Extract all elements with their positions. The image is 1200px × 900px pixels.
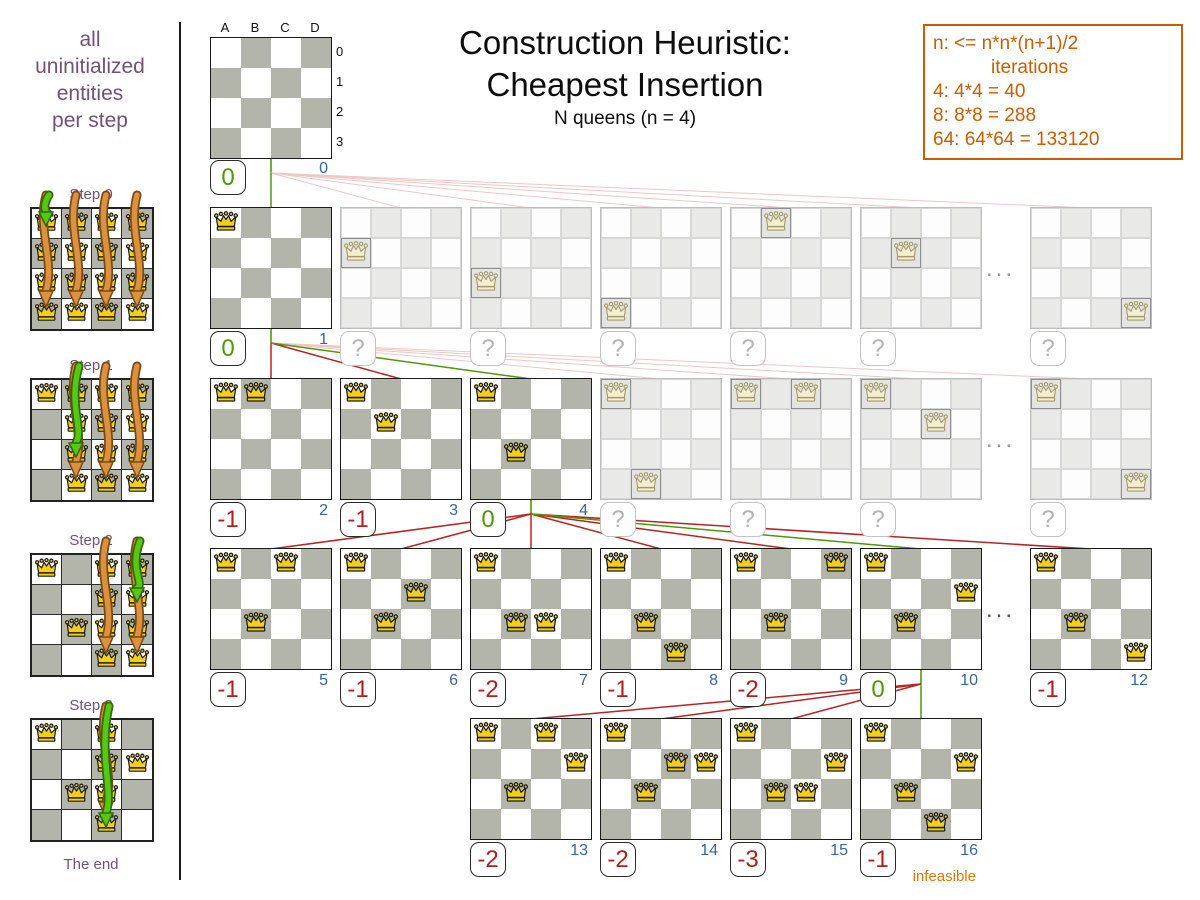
board-square xyxy=(731,639,761,669)
queen-icon xyxy=(503,441,529,468)
column-label: B xyxy=(240,20,270,35)
queen-icon xyxy=(763,611,789,638)
board-square xyxy=(371,639,401,669)
board-square xyxy=(1091,609,1121,639)
board-square xyxy=(531,208,561,238)
board-square xyxy=(1121,439,1151,469)
queen-icon xyxy=(64,271,89,297)
board-square xyxy=(731,268,761,298)
board-square xyxy=(211,98,241,128)
board-square xyxy=(271,609,301,639)
board-square xyxy=(691,749,721,779)
queen-icon xyxy=(923,811,949,838)
queen-icon xyxy=(603,300,629,327)
board-iteration-16 xyxy=(860,718,982,840)
board-square xyxy=(431,439,461,469)
board-square xyxy=(661,298,691,328)
queen-icon xyxy=(213,381,239,408)
queen-icon xyxy=(1033,381,1059,408)
board-square xyxy=(791,639,821,669)
queen-icon xyxy=(893,611,919,638)
board-square xyxy=(951,298,981,328)
board-square xyxy=(92,470,122,500)
board-square xyxy=(32,645,62,675)
row-label: 3 xyxy=(336,134,350,149)
note-line: iterations xyxy=(933,56,1173,80)
queen-icon xyxy=(603,551,629,578)
board-square xyxy=(211,298,241,328)
board-square xyxy=(561,208,591,238)
board-square xyxy=(731,809,761,839)
unevaluated-board xyxy=(1030,378,1152,500)
board-square xyxy=(921,639,951,669)
board-square xyxy=(951,469,981,499)
board-square xyxy=(211,208,241,238)
board-square xyxy=(32,615,62,645)
board-square xyxy=(631,208,661,238)
board-square xyxy=(301,639,331,669)
queen-icon xyxy=(243,381,269,408)
board-square xyxy=(691,208,721,238)
board-square xyxy=(92,810,122,840)
board-square xyxy=(341,549,371,579)
queen-icon xyxy=(34,211,59,237)
board-square xyxy=(401,579,431,609)
board-square xyxy=(601,208,631,238)
board-square xyxy=(62,380,92,410)
board-square xyxy=(891,298,921,328)
board-square xyxy=(1031,639,1061,669)
board-square xyxy=(731,609,761,639)
board-square xyxy=(471,609,501,639)
queen-icon xyxy=(94,587,119,613)
board-square xyxy=(271,238,301,268)
board-square xyxy=(921,298,951,328)
board-square xyxy=(431,208,461,238)
queen-icon xyxy=(343,551,369,578)
queen-icon xyxy=(125,301,150,327)
board-square xyxy=(531,549,561,579)
step-board-2 xyxy=(30,553,154,677)
queen-icon xyxy=(34,301,59,327)
board-square xyxy=(1121,268,1151,298)
queen-icon xyxy=(94,412,119,438)
queen-icon xyxy=(94,617,119,643)
board-square xyxy=(601,779,631,809)
board-square xyxy=(921,409,951,439)
board-square xyxy=(431,469,461,499)
board-square xyxy=(401,379,431,409)
board-square xyxy=(951,409,981,439)
board-square xyxy=(1121,579,1151,609)
board-square xyxy=(471,298,501,328)
board-square xyxy=(791,298,821,328)
board-square xyxy=(471,268,501,298)
board-square xyxy=(531,298,561,328)
board-square xyxy=(301,128,331,158)
queen-icon xyxy=(94,241,119,267)
board-square xyxy=(92,750,122,780)
board-square xyxy=(561,779,591,809)
queen-icon xyxy=(823,751,849,778)
score-badge: -1 xyxy=(1030,672,1066,707)
board-square xyxy=(601,409,631,439)
board-square xyxy=(761,379,791,409)
board-square xyxy=(122,645,152,675)
intro-line: all xyxy=(4,26,176,53)
board-square xyxy=(661,268,691,298)
queen-icon xyxy=(893,240,919,267)
sidebar-intro-text: all uninitialized entities per step xyxy=(4,26,176,134)
board-square xyxy=(271,208,301,238)
score-badge: ? xyxy=(1030,502,1066,537)
board-square xyxy=(561,749,591,779)
board-square xyxy=(301,469,331,499)
board-square xyxy=(241,38,271,68)
board-square xyxy=(92,615,122,645)
column-label: D xyxy=(300,20,330,35)
board-square xyxy=(271,639,301,669)
board-square xyxy=(921,749,951,779)
board-square xyxy=(631,409,661,439)
queen-icon xyxy=(603,721,629,748)
board-square xyxy=(561,579,591,609)
board-square xyxy=(1061,639,1091,669)
queen-icon xyxy=(64,782,89,808)
queen-icon xyxy=(125,647,150,673)
board-square xyxy=(561,439,591,469)
board-square xyxy=(1091,579,1121,609)
board-square xyxy=(761,719,791,749)
board-square xyxy=(371,379,401,409)
board-square xyxy=(1121,469,1151,499)
board-square xyxy=(631,719,661,749)
board-square xyxy=(791,809,821,839)
score-badge: ? xyxy=(340,331,376,366)
board-square xyxy=(271,469,301,499)
board-square xyxy=(1031,409,1061,439)
iteration-number: 13 xyxy=(558,842,588,860)
score-badge: -2 xyxy=(470,842,506,877)
board-square xyxy=(122,750,152,780)
queen-icon xyxy=(503,781,529,808)
note-line: 8: 8*8 = 288 xyxy=(933,104,1173,128)
board-square xyxy=(1061,549,1091,579)
board-square xyxy=(341,268,371,298)
queen-icon xyxy=(603,381,629,408)
board-square xyxy=(531,639,561,669)
board-square xyxy=(62,440,92,470)
board-square xyxy=(631,379,661,409)
board-square xyxy=(1091,439,1121,469)
board-square xyxy=(341,409,371,439)
queen-icon xyxy=(473,721,499,748)
board-square xyxy=(631,579,661,609)
board-square xyxy=(861,439,891,469)
board-square xyxy=(731,379,761,409)
board-square xyxy=(821,609,851,639)
board-square xyxy=(821,719,851,749)
board-square xyxy=(401,549,431,579)
board-square xyxy=(1091,379,1121,409)
board-square xyxy=(471,469,501,499)
board-square xyxy=(371,439,401,469)
title-line-1: Construction Heuristic: xyxy=(390,22,860,64)
board-square xyxy=(32,720,62,750)
board-square xyxy=(271,128,301,158)
ellipsis: ... xyxy=(986,426,1015,454)
board-square xyxy=(661,549,691,579)
board-square xyxy=(1091,268,1121,298)
board-square xyxy=(241,579,271,609)
board-square xyxy=(371,409,401,439)
score-badge: ? xyxy=(730,502,766,537)
queen-icon xyxy=(733,721,759,748)
board-square xyxy=(211,579,241,609)
board-square xyxy=(241,208,271,238)
board-square xyxy=(761,639,791,669)
board-square xyxy=(1091,238,1121,268)
root-board xyxy=(210,37,332,159)
board-square xyxy=(122,810,152,840)
board-square xyxy=(601,379,631,409)
unevaluated-board xyxy=(860,207,982,329)
score-badge: -1 xyxy=(340,672,376,707)
board-square xyxy=(891,409,921,439)
board-square xyxy=(271,68,301,98)
board-square xyxy=(861,268,891,298)
queen-icon xyxy=(533,721,559,748)
board-square xyxy=(62,720,92,750)
queen-icon xyxy=(64,382,89,408)
board-square xyxy=(691,579,721,609)
board-square xyxy=(921,208,951,238)
board-square xyxy=(1031,549,1061,579)
board-square xyxy=(531,809,561,839)
board-square xyxy=(92,440,122,470)
board-square xyxy=(271,579,301,609)
board-square xyxy=(241,98,271,128)
board-square xyxy=(401,609,431,639)
board-square xyxy=(1031,439,1061,469)
board-square xyxy=(921,238,951,268)
queen-icon xyxy=(473,270,499,297)
queen-icon xyxy=(633,471,659,498)
board-square xyxy=(731,579,761,609)
board-square xyxy=(861,549,891,579)
row-label: 2 xyxy=(336,104,350,119)
board-square xyxy=(341,298,371,328)
board-square xyxy=(471,579,501,609)
board-square xyxy=(921,379,951,409)
board-square xyxy=(32,299,62,329)
board-square xyxy=(601,639,631,669)
board-square xyxy=(122,555,152,585)
board-square xyxy=(211,439,241,469)
board-square xyxy=(761,579,791,609)
board-square xyxy=(631,609,661,639)
board-square xyxy=(62,780,92,810)
board-square xyxy=(951,379,981,409)
board-square xyxy=(691,439,721,469)
board-square xyxy=(32,410,62,440)
board-square xyxy=(1061,579,1091,609)
board-square xyxy=(62,645,92,675)
board-square xyxy=(861,609,891,639)
board-square xyxy=(371,208,401,238)
board-square xyxy=(761,298,791,328)
board-square xyxy=(691,809,721,839)
board-square xyxy=(301,379,331,409)
board-square xyxy=(561,469,591,499)
board-iteration-2 xyxy=(210,378,332,500)
board-square xyxy=(1121,208,1151,238)
queen-icon xyxy=(94,647,119,673)
board-square xyxy=(561,238,591,268)
board-square xyxy=(241,409,271,439)
board-iteration-10 xyxy=(860,548,982,670)
queen-icon xyxy=(563,751,589,778)
board-square xyxy=(601,719,631,749)
board-square xyxy=(821,268,851,298)
queen-icon xyxy=(64,301,89,327)
board-square xyxy=(761,609,791,639)
board-square xyxy=(1031,469,1061,499)
board-square xyxy=(691,238,721,268)
board-square xyxy=(891,749,921,779)
board-square xyxy=(951,208,981,238)
board-square xyxy=(861,579,891,609)
board-square xyxy=(32,209,62,239)
queen-icon xyxy=(1033,551,1059,578)
board-square xyxy=(791,409,821,439)
queen-icon xyxy=(125,412,150,438)
board-square xyxy=(211,639,241,669)
board-square xyxy=(32,780,62,810)
board-square xyxy=(32,470,62,500)
iteration-number: 6 xyxy=(428,672,458,690)
board-square xyxy=(861,409,891,439)
board-square xyxy=(631,439,661,469)
score-badge: -3 xyxy=(730,842,766,877)
board-square xyxy=(271,549,301,579)
score-badge: 0 xyxy=(210,331,246,366)
board-square xyxy=(501,749,531,779)
score-badge: -2 xyxy=(470,672,506,707)
queen-icon xyxy=(213,210,239,237)
board-square xyxy=(951,779,981,809)
board-square xyxy=(951,719,981,749)
board-square xyxy=(731,549,761,579)
board-square xyxy=(211,38,241,68)
board-square xyxy=(501,719,531,749)
board-square xyxy=(791,238,821,268)
board-square xyxy=(861,749,891,779)
board-iteration-14 xyxy=(600,718,722,840)
queen-icon xyxy=(64,472,89,498)
iteration-number: 3 xyxy=(428,502,458,520)
board-square xyxy=(951,579,981,609)
board-square xyxy=(471,208,501,238)
board-square xyxy=(501,238,531,268)
board-iteration-13 xyxy=(470,718,592,840)
board-square xyxy=(501,579,531,609)
board-square xyxy=(371,268,401,298)
queen-icon xyxy=(763,210,789,237)
board-square xyxy=(561,549,591,579)
queen-icon xyxy=(1063,611,1089,638)
queen-icon xyxy=(64,617,89,643)
board-square xyxy=(92,720,122,750)
queen-icon xyxy=(733,551,759,578)
score-badge: ? xyxy=(730,331,766,366)
board-square xyxy=(211,238,241,268)
board-square xyxy=(431,609,461,639)
board-square xyxy=(92,239,122,269)
board-square xyxy=(1091,549,1121,579)
board-square xyxy=(951,439,981,469)
unevaluated-board xyxy=(470,207,592,329)
board-square xyxy=(761,749,791,779)
board-square xyxy=(1061,379,1091,409)
step-board-3 xyxy=(30,718,154,842)
board-square xyxy=(241,128,271,158)
board-square xyxy=(531,439,561,469)
board-square xyxy=(531,379,561,409)
board-square xyxy=(691,379,721,409)
board-square xyxy=(661,379,691,409)
unevaluated-board xyxy=(340,207,462,329)
board-square xyxy=(122,269,152,299)
board-iteration-4 xyxy=(470,378,592,500)
score-badge: ? xyxy=(600,502,636,537)
board-square xyxy=(32,440,62,470)
board-square xyxy=(241,238,271,268)
board-square xyxy=(62,239,92,269)
board-square xyxy=(1121,238,1151,268)
board-square xyxy=(791,719,821,749)
iteration-number: 4 xyxy=(558,502,588,520)
board-square xyxy=(891,719,921,749)
board-square xyxy=(561,639,591,669)
page-title: Construction Heuristic: Cheapest Inserti… xyxy=(390,22,860,106)
queen-icon xyxy=(1123,641,1149,668)
infeasible-label: infeasible xyxy=(858,868,976,885)
board-square xyxy=(731,779,761,809)
board-square xyxy=(921,719,951,749)
iterations-note-box: n: <= n*n*(n+1)/2 iterations 4: 4*4 = 40… xyxy=(923,24,1183,160)
board-square xyxy=(821,409,851,439)
board-square xyxy=(301,98,331,128)
board-square xyxy=(821,238,851,268)
board-square xyxy=(891,268,921,298)
board-square xyxy=(731,439,761,469)
board-square xyxy=(1091,298,1121,328)
board-square xyxy=(122,380,152,410)
board-square xyxy=(531,469,561,499)
board-square xyxy=(861,238,891,268)
iteration-number: 0 xyxy=(298,160,328,178)
board-square xyxy=(661,238,691,268)
board-square xyxy=(921,809,951,839)
queen-icon xyxy=(823,551,849,578)
board-square xyxy=(821,298,851,328)
queen-icon xyxy=(94,442,119,468)
board-square xyxy=(122,299,152,329)
board-square xyxy=(471,719,501,749)
board-square xyxy=(271,298,301,328)
board-square xyxy=(1031,268,1061,298)
